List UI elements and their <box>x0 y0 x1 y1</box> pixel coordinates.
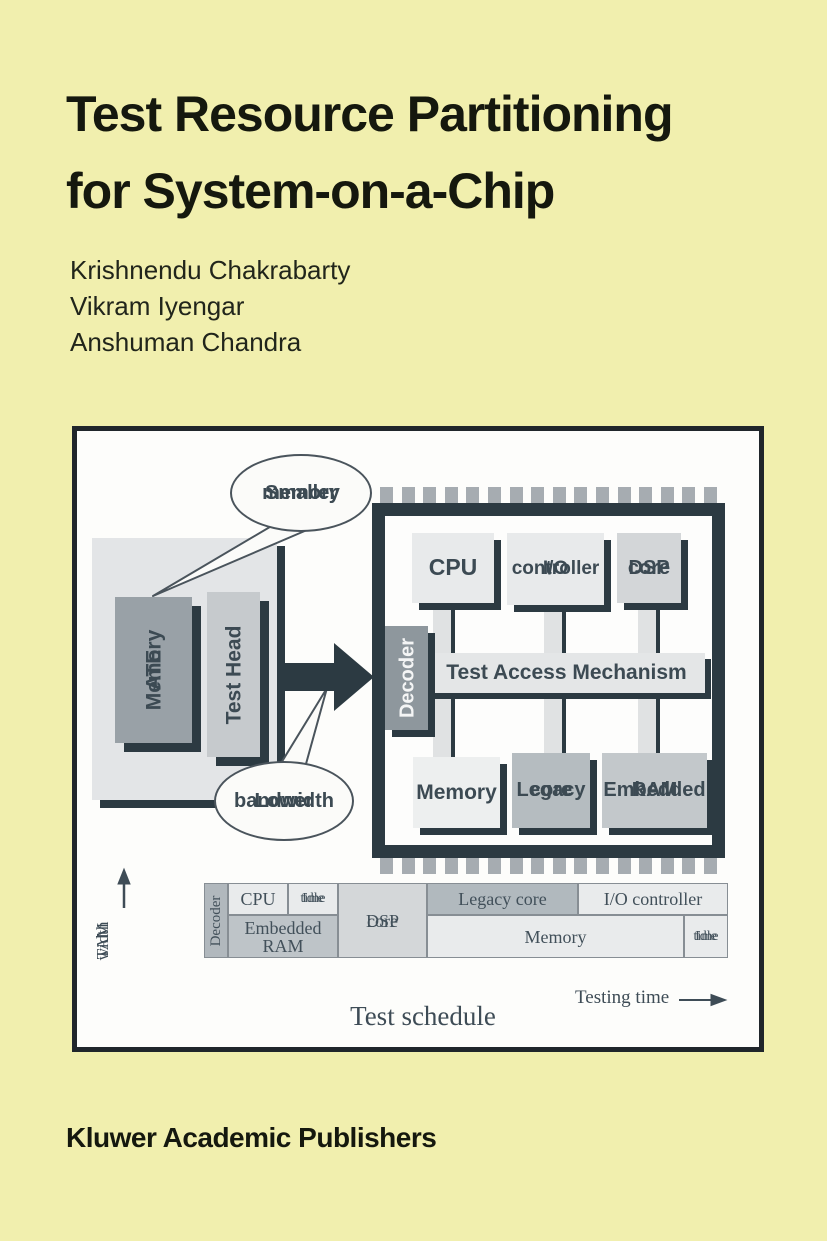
chip-pin <box>531 487 544 503</box>
title-line-2: for System-on-a-Chip <box>66 153 673 230</box>
chip-package: Test Access Mechanism CPU I/O controller… <box>372 503 725 858</box>
chip-pin <box>618 858 631 874</box>
ate-memory-label: ATE Memory <box>115 597 192 743</box>
author-name: Krishnendu Chakrabarty <box>70 252 350 288</box>
wire-tam-legacy <box>544 693 566 753</box>
chip-pin <box>466 858 479 874</box>
author-name: Anshuman Chandra <box>70 324 350 360</box>
book-title: Test Resource Partitioning for System-on… <box>66 76 673 230</box>
chip-pin <box>682 858 695 874</box>
chip-pin <box>704 487 717 503</box>
chip-pin <box>380 487 393 503</box>
wire-tam-ram <box>638 693 660 753</box>
schedule-decoder-label: Decoder <box>205 886 227 956</box>
author-list: Krishnendu Chakrabarty Vikram Iyengar An… <box>70 252 350 360</box>
ate-to-chip-arrow <box>278 643 374 711</box>
schedule-cell-embedded-ram: Embedded RAM <box>228 915 338 958</box>
wire-dsp-tam <box>638 603 660 653</box>
test-head-box: Test Head <box>207 592 260 757</box>
core-memory: Memory <box>413 757 500 828</box>
chip-pin <box>423 487 436 503</box>
test-schedule-caption: Test schedule <box>323 1001 523 1032</box>
chip-pin <box>488 858 501 874</box>
chip-pin <box>445 858 458 874</box>
chip-pin <box>510 858 523 874</box>
chip-pin <box>661 858 674 874</box>
chip-pin <box>488 487 501 503</box>
author-name: Vikram Iyengar <box>70 288 350 324</box>
tam-width-text: TAM width <box>85 908 121 974</box>
tam-width-axis-arrow <box>118 869 130 908</box>
core-embedded-ram: Embedded RAM <box>602 753 707 828</box>
wire-tam-memory <box>433 693 455 757</box>
chip-pin <box>466 487 479 503</box>
callout-text: bandwidth <box>234 790 334 813</box>
book-cover: Test Resource Partitioning for System-on… <box>0 0 827 1241</box>
chip-pin <box>574 487 587 503</box>
chip-pin <box>553 487 566 503</box>
schedule-cell-idle-bottom: Idle time <box>684 915 728 958</box>
chip-pin <box>704 858 717 874</box>
test-access-mechanism-bar: Test Access Mechanism <box>428 653 705 693</box>
chip-pin <box>402 858 415 874</box>
core-dsp: DSP core <box>617 533 681 603</box>
decoder-box: Decoder <box>385 626 428 730</box>
callout-smaller-memory: Smaller memory <box>230 454 372 532</box>
chip-pin <box>445 487 458 503</box>
tam-width-axis-label: TAM width <box>85 908 121 974</box>
callout-lower-bandwidth: Lower bandwidth <box>214 761 354 841</box>
core-cpu: CPU <box>412 533 494 603</box>
schedule-cell-io: I/O controller <box>578 883 728 915</box>
chip-pin <box>510 487 523 503</box>
chip-pin <box>423 858 436 874</box>
chip-pin <box>553 858 566 874</box>
schedule-cell-idle-top: Idle time <box>288 883 338 915</box>
title-line-1: Test Resource Partitioning <box>66 76 673 153</box>
chip-pin <box>639 487 652 503</box>
chip-pin <box>661 487 674 503</box>
schedule-cell-cpu: CPU <box>228 883 288 915</box>
wire-io-tam <box>544 605 566 653</box>
chip-pin <box>618 487 631 503</box>
wire-cpu-tam <box>433 603 455 653</box>
core-io-controller: I/O controller <box>507 533 604 605</box>
chip-pin <box>596 858 609 874</box>
core-legacy: Legacy core <box>512 753 590 828</box>
publisher-name: Kluwer Academic Publishers <box>66 1122 436 1154</box>
chip-pin <box>596 487 609 503</box>
chip-pin <box>639 858 652 874</box>
schedule-cell-dsp: DSP core <box>338 883 427 958</box>
testing-time-axis-label: Testing time <box>575 987 669 1009</box>
schedule-cell-legacy: Legacy core <box>427 883 578 915</box>
chip-pin <box>531 858 544 874</box>
cover-figure: Smaller memory Lower bandwidth ATE Memor… <box>72 426 764 1052</box>
schedule-cell-decoder: Decoder <box>204 883 228 958</box>
chip-pin <box>402 487 415 503</box>
ate-memory-box: ATE Memory <box>115 597 192 743</box>
chip-pin <box>682 487 695 503</box>
callout-text: memory <box>262 482 340 505</box>
test-head-label: Test Head <box>207 592 260 757</box>
testing-time-arrow <box>679 995 726 1006</box>
schedule-cell-memory: Memory <box>427 915 684 958</box>
chip-pin <box>574 858 587 874</box>
chip-pin <box>380 858 393 874</box>
test-schedule-chart: Decoder CPU Idle time Embedded RAM DSP c… <box>204 883 728 958</box>
decoder-label: Decoder <box>385 626 428 730</box>
